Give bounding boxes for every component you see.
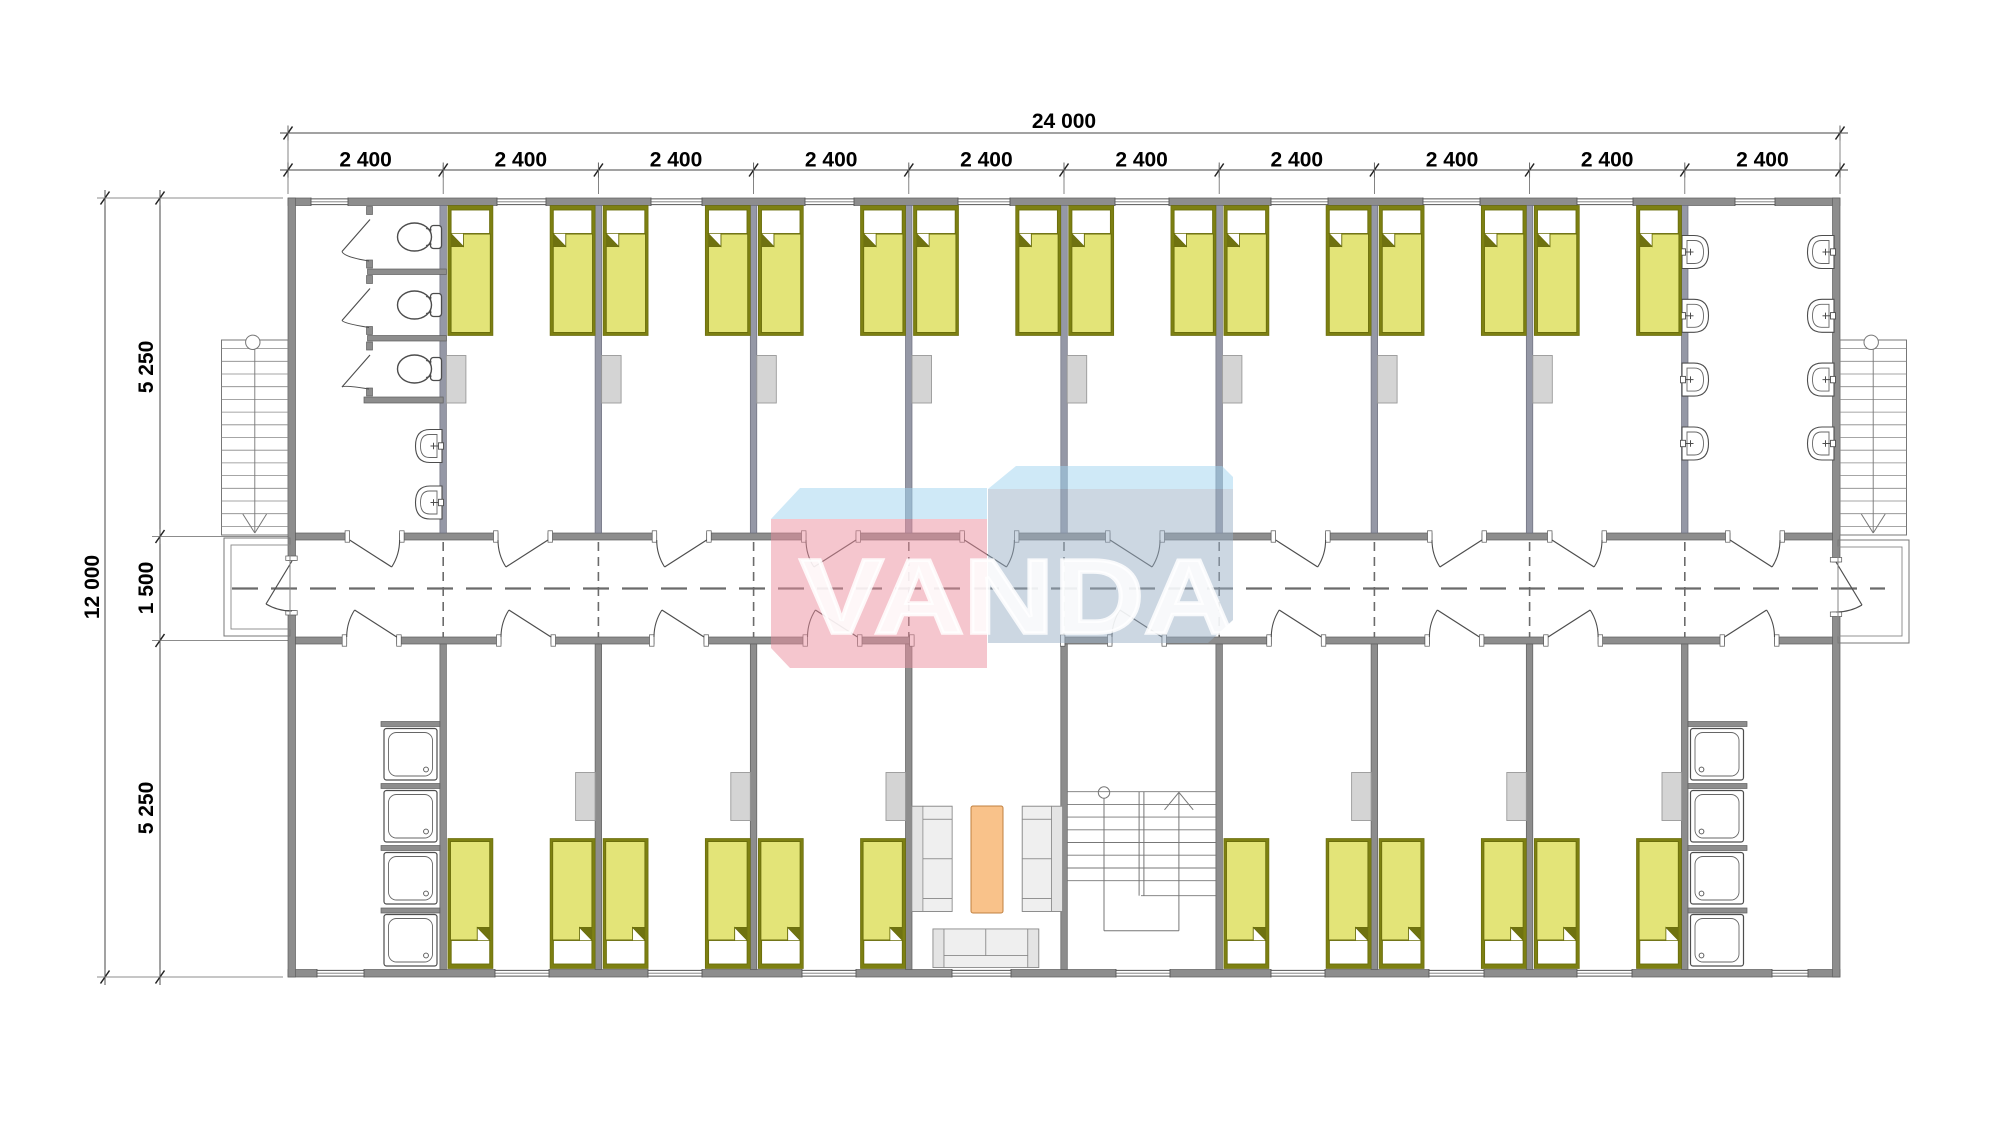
svg-text:2 400: 2 400	[1271, 149, 1324, 172]
svg-text:24 000: 24 000	[1032, 110, 1096, 133]
svg-text:2 400: 2 400	[1115, 149, 1168, 172]
svg-text:2 400: 2 400	[805, 149, 858, 172]
svg-text:12 000: 12 000	[81, 555, 104, 619]
svg-text:VANDA: VANDA	[800, 538, 1234, 656]
svg-text:2 400: 2 400	[339, 149, 392, 172]
svg-text:1 500: 1 500	[135, 562, 158, 615]
svg-text:2 400: 2 400	[1426, 149, 1479, 172]
svg-text:5 250: 5 250	[135, 341, 158, 394]
svg-text:2 400: 2 400	[650, 149, 703, 172]
svg-text:2 400: 2 400	[495, 149, 548, 172]
svg-text:2 400: 2 400	[960, 149, 1013, 172]
svg-text:2 400: 2 400	[1736, 149, 1789, 172]
svg-text:2 400: 2 400	[1581, 149, 1634, 172]
svg-text:5 250: 5 250	[135, 782, 158, 835]
